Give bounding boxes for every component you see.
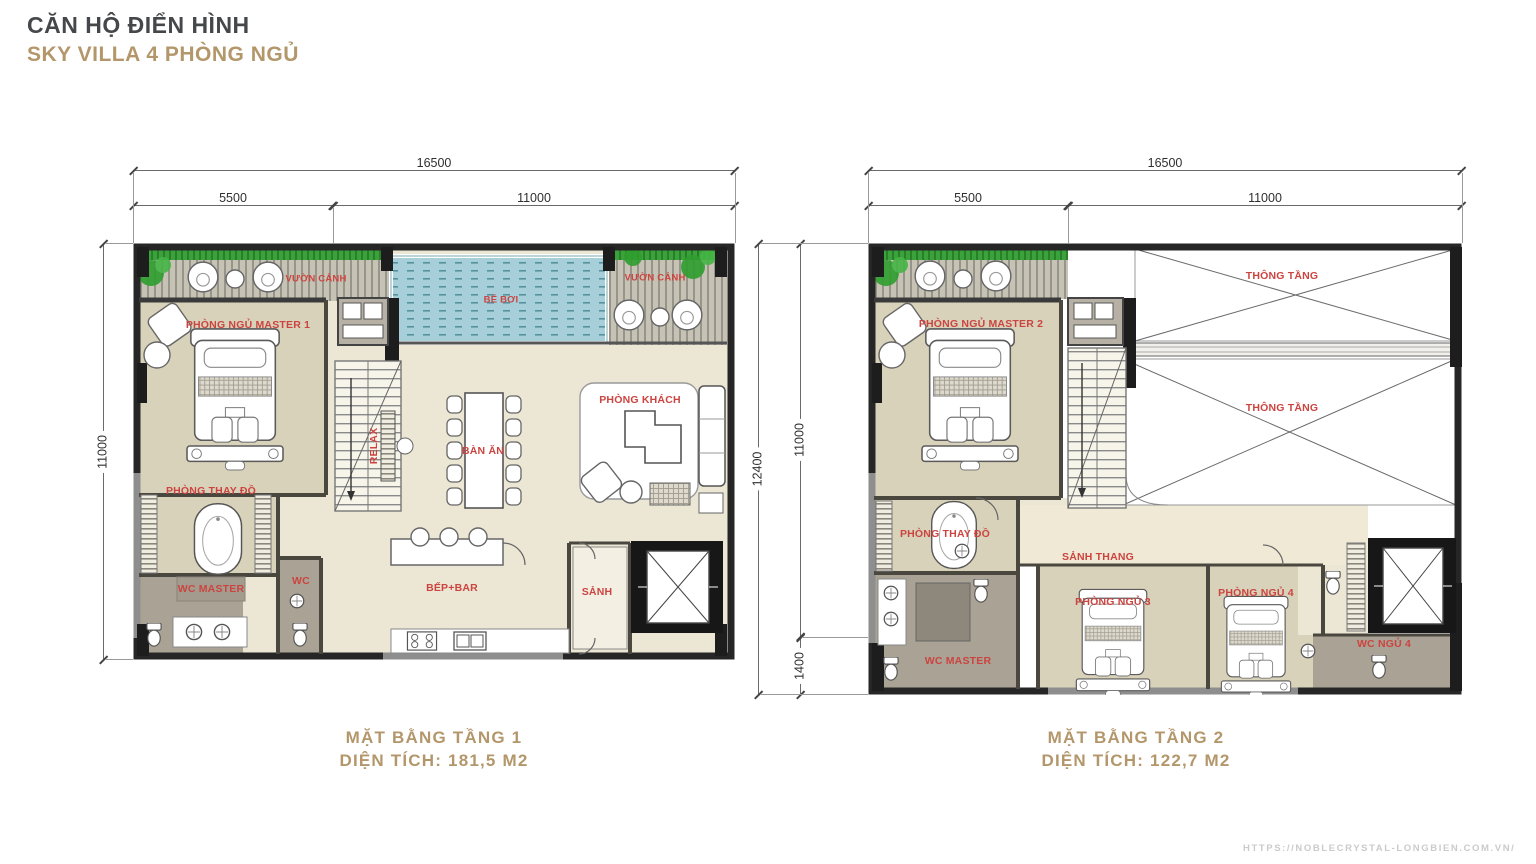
plan2-dim-right-label: 11000: [1244, 191, 1286, 205]
floor-plan-1-drawing: [133, 243, 735, 660]
plan2-dim-left-label: 5500: [950, 191, 986, 205]
page-subtitle: SKY VILLA 4 PHÒNG NGỦ: [27, 43, 299, 67]
plan2-dim-total-height-label: 12400: [750, 448, 764, 491]
room-label-wc: WC: [292, 575, 310, 587]
room-label-pool: BỂ BƠI: [484, 295, 519, 306]
floor-plan-2: THÔNG TẦNG THÔNG TẦNG PHÒNG NGỦ MASTER 2…: [868, 243, 1462, 695]
plan1-dim-left-label: 5500: [215, 191, 251, 205]
plan2-voids: [1123, 249, 1456, 505]
room-label-void-lower: THÔNG TẦNG: [1246, 402, 1319, 414]
room-label-garden-left: VƯỜN CẢNH: [285, 274, 346, 285]
watermark-url: HTTPS://NOBLECRYSTAL-LONGBIEN.COM.VN/: [1243, 843, 1515, 854]
plan2-caption-title: MẶT BẰNG TẦNG 2: [1041, 726, 1230, 749]
plan2-dim-height-ext: 1400: [800, 637, 801, 695]
plan2-caption-area: DIỆN TÍCH: 122,7 M2: [1041, 749, 1230, 772]
page-title: CĂN HỘ ĐIỂN HÌNH: [27, 12, 299, 39]
room-label-garden-right: VƯỜN CẢNH: [624, 273, 685, 284]
plan1-closet: [338, 298, 388, 345]
plan1-caption-area: DIỆN TÍCH: 181,5 M2: [339, 749, 528, 772]
room-label-kitchen: BẾP+BAR: [426, 582, 478, 594]
plan2-caption: MẶT BẰNG TẦNG 2 DIỆN TÍCH: 122,7 M2: [1041, 726, 1230, 772]
plan1-dim-right-label: 11000: [513, 191, 555, 205]
plan1-dim-height-label: 11000: [95, 431, 109, 473]
plan2-dim-right: 11000: [1068, 205, 1462, 206]
plan2-dim-height-ext-label: 1400: [793, 648, 807, 684]
room-label-dining: BÀN ĂN: [462, 445, 504, 457]
room-label-wc-master: WC MASTER: [178, 583, 245, 595]
plan2-dim-total-width-label: 16500: [1144, 156, 1187, 170]
plan2-closet: [1068, 298, 1123, 345]
room-label-bedroom-4: PHÒNG NGỦ 4: [1218, 587, 1294, 599]
room-label-relax: RELAX: [368, 428, 380, 465]
floor-plan-page: CĂN HỘ ĐIỂN HÌNH SKY VILLA 4 PHÒNG NGỦ 1…: [0, 0, 1536, 864]
room-label-wc-master-2: WC MASTER: [925, 655, 992, 667]
plan1-dim-left: 5500: [133, 205, 333, 206]
room-label-wc-bedroom-4: WC NGỦ 4: [1357, 638, 1411, 650]
room-label-master-bedroom-2: PHÒNG NGỦ MASTER 2: [919, 318, 1043, 330]
plan2-dim-height-main-label: 11000: [792, 419, 806, 461]
plan2-dim-total-height: 12400: [758, 243, 759, 695]
plan1-dim-total-width: 16500: [133, 170, 735, 171]
floor-plan-2-drawing: [868, 243, 1462, 695]
plan2-elevator: [1368, 538, 1456, 633]
plan1-caption-title: MẶT BẰNG TẦNG 1: [339, 726, 528, 749]
header: CĂN HỘ ĐIỂN HÌNH SKY VILLA 4 PHÒNG NGỦ: [27, 12, 299, 67]
room-label-master-bedroom-1: PHÒNG NGỦ MASTER 1: [186, 319, 310, 331]
room-label-living: PHÒNG KHÁCH: [599, 394, 681, 406]
plan2-dim-height-main: 11000: [800, 243, 801, 637]
plan1-caption: MẶT BẰNG TẦNG 1 DIỆN TÍCH: 181,5 M2: [339, 726, 528, 772]
plan1-dim-right: 11000: [333, 205, 735, 206]
floor-plan-1: VƯỜN CẢNH BỂ BƠI VƯỜN CẢNH PHÒNG NGỦ MAS…: [133, 243, 735, 660]
plan1-elevator: [631, 541, 723, 633]
plan1-dim-height: 11000: [103, 243, 104, 660]
plan2-dim-total-width: 16500: [868, 170, 1462, 171]
plan2-dim-left: 5500: [868, 205, 1068, 206]
room-label-dressing-room-2: PHÒNG THAY ĐỒ: [900, 528, 990, 540]
room-label-bedroom-3: PHÒNG NGỦ 3: [1075, 596, 1151, 608]
room-label-stair-hall: SẢNH THANG: [1062, 551, 1134, 563]
room-label-dressing-room: PHÒNG THAY ĐỒ: [166, 485, 256, 497]
room-label-hall: SẢNH: [582, 586, 613, 598]
room-label-void-upper: THÔNG TẦNG: [1246, 270, 1319, 282]
plan1-dim-total-width-label: 16500: [413, 156, 456, 170]
